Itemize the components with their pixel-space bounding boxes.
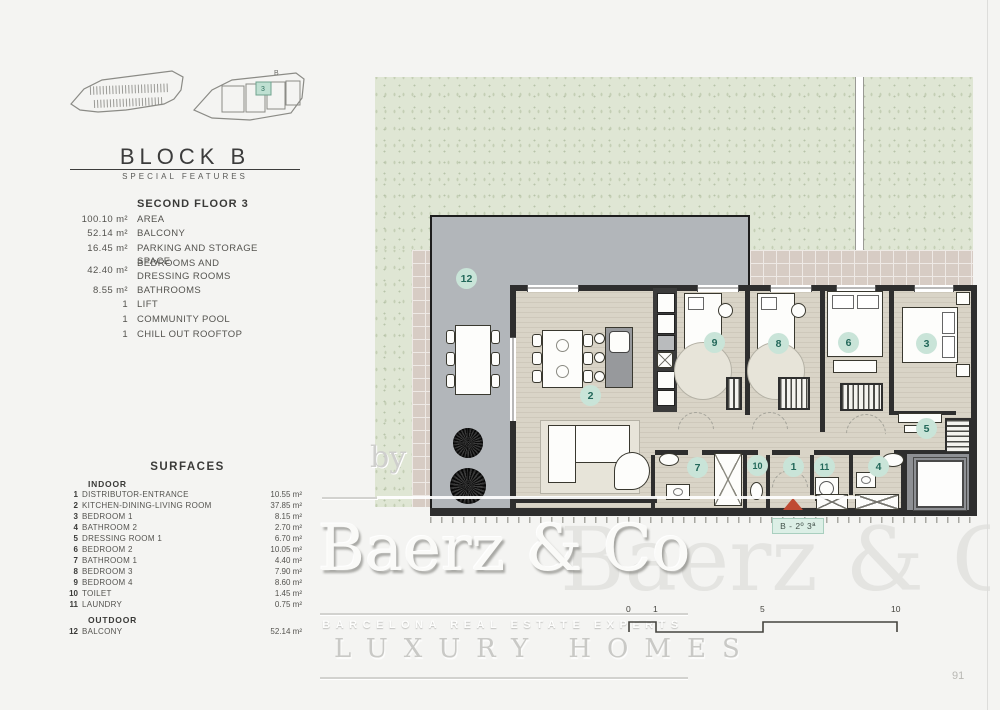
feature-row: 42.40 m² BEDROOMS AND DRESSING ROOMS [58,258,247,283]
feature-value: 52.14 m² [58,228,128,241]
wall-laundry-bath4 [849,455,853,495]
chair [583,370,593,383]
brochure-page: 3 B BLOCK B SPECIAL FEATURES SECOND FLOO… [0,0,1000,710]
surface-label: TOILET [82,589,252,598]
chair [446,330,455,344]
surface-value: 52.14 m² [252,627,302,636]
feature-row: 1 CHILL OUT ROOFTOP [58,329,287,342]
toilet [659,453,679,466]
surface-value: 10.55 m² [252,490,302,499]
window [770,285,812,292]
surface-value: 4.40 m² [252,556,302,565]
feature-row: 52.14 m² BALCONY [58,228,287,241]
feature-label: BEDROOMS AND DRESSING ROOMS [137,258,247,283]
surface-label: BATHROOM 2 [82,523,252,532]
wall-entrance-laundry [810,455,814,495]
wall-left-lower [510,421,516,508]
page-edge [987,0,988,710]
feature-value: 1 [58,299,128,312]
surface-label: BEDROOM 4 [82,578,252,587]
floor-section-title: SECOND FLOOR 3 [137,198,249,210]
surface-num: 8 [62,567,78,576]
surface-value: 6.70 m² [252,534,302,543]
surface-label: BEDROOM 2 [82,545,252,554]
surface-value: 10.05 m² [252,545,302,554]
room-badge-kitchen-dining-living: 2 [580,385,601,406]
wardrobe [840,383,883,411]
surface-row: 4 BATHROOM 2 2.70 m² [62,523,302,532]
surface-value: 0.75 m² [252,600,302,609]
building-overview-diagram [68,68,190,132]
wardrobe [778,377,810,410]
scale-tick: 5 [760,604,765,614]
surface-num: 2 [62,501,78,510]
surface-row: 10 TOILET 1.45 m² [62,589,302,598]
bed-bench [833,360,877,373]
indoor-heading: INDOOR [88,479,127,489]
room-badge-balcony: 12 [456,268,477,289]
scale-tick: 0 [626,604,631,614]
sofa-chaise [548,425,576,483]
title-rule [70,169,300,170]
surface-num: 5 [62,534,78,543]
room-badge-toilet: 10 [747,455,768,476]
hall-door-gap [688,450,702,455]
nightstand [956,292,970,305]
room-badge-bathroom-1: 7 [687,457,708,478]
surface-num: 6 [62,545,78,554]
window [527,285,579,292]
feature-label: LIFT [137,299,287,312]
surface-row: 3 BEDROOM 1 8.15 m² [62,512,302,521]
block-title: BLOCK B [70,144,300,170]
window [697,285,739,292]
chair [532,370,542,383]
nightstand [956,364,970,377]
room-badge-bedroom-4: 9 [704,332,725,353]
chair [446,352,455,366]
kitchen-cabinet-column [653,288,677,412]
surface-num: 1 [62,490,78,499]
surface-label: DISTRIBUTOR-ENTRANCE [82,490,252,499]
surface-value: 2.70 m² [252,523,302,532]
surface-row: 2 KITCHEN-DINING-LIVING ROOM 37.85 m² [62,501,302,510]
stool [791,303,806,318]
feature-label: AREA [137,214,287,227]
surface-row: 6 BEDROOM 2 10.05 m² [62,545,302,554]
surface-num: 9 [62,578,78,587]
kitchen-island [605,327,633,388]
surface-num: 10 [62,589,78,598]
wall-left-upper [510,285,516,337]
block-subtitle: SPECIAL FEATURES [70,172,300,181]
room-badge-bedroom-3: 8 [768,333,789,354]
window [914,285,954,292]
bar-stool [594,333,605,344]
surface-label: BALCONY [82,627,252,636]
chair [446,374,455,388]
feature-label: BATHROOMS [137,285,287,298]
chair [532,352,542,365]
surface-row: 12 BALCONY 52.14 m² [62,627,302,636]
dining-table [542,330,583,388]
wall-top [510,285,977,291]
surface-row: 1 DISTRIBUTOR-ENTRANCE 10.55 m² [62,490,302,499]
surface-label: DRESSING ROOM 1 [82,534,252,543]
wall-bath7-left [651,455,655,510]
surface-row: 7 BATHROOM 1 4.40 m² [62,556,302,565]
watermark-by: by [370,440,406,475]
surface-row: 11 LAUNDRY 0.75 m² [62,600,302,609]
diagram-b-label: B [274,70,279,77]
chair [491,374,500,388]
outdoor-heading: OUTDOOR [88,615,137,625]
surface-value: 7.90 m² [252,567,302,576]
surface-row: 9 BEDROOM 4 8.60 m² [62,578,302,587]
room-badge-bathroom-2: 4 [868,456,889,477]
surface-label: BATHROOM 1 [82,556,252,565]
chair [491,352,500,366]
wall-bed6-3 [889,287,894,415]
divider-line-light [377,496,860,499]
surface-num: 4 [62,523,78,532]
page-number: 91 [952,670,964,682]
surface-value: 8.60 m² [252,578,302,587]
wall-bed9-8 [745,287,750,415]
watermark-brand: Baerz & Co [318,512,688,586]
chair [583,334,593,347]
feature-value: 8.55 m² [58,285,128,298]
chair [583,352,593,365]
surface-row: 8 BEDROOM 3 7.90 m² [62,567,302,576]
chair [491,330,500,344]
wardrobe [726,377,742,410]
surface-num: 3 [62,512,78,521]
feature-row: 8.55 m² BATHROOMS [58,285,287,298]
surface-value: 37.85 m² [252,501,302,510]
feature-label: CHILL OUT ROOFTOP [137,329,287,342]
stool [718,303,733,318]
watermark-rule-bottom [320,677,688,679]
feature-value: 1 [58,329,128,342]
surface-num: 12 [62,627,78,636]
surface-value: 1.45 m² [252,589,302,598]
bar-stool [594,371,605,382]
surface-label: BEDROOM 1 [82,512,252,521]
lift-shaft [905,452,971,512]
feature-row: 100.10 m² AREA [58,214,287,227]
chair [532,334,542,347]
surface-label: LAUNDRY [82,600,252,609]
scale-tick: 10 [891,604,900,614]
balcony-dining-table [455,325,491,395]
feature-label: BALCONY [137,228,287,241]
floor-location-diagram: 3 [192,66,308,134]
feature-value: 100.10 m² [58,214,128,227]
divider-line [322,497,378,499]
bar-stool [594,352,605,363]
feature-row: 1 COMMUNITY POOL [58,314,287,327]
surface-value: 8.15 m² [252,512,302,521]
feature-row: 1 LIFT [58,299,287,312]
room-badge-bedroom-2: 6 [838,332,859,353]
scale-tick: 1 [653,604,658,614]
balcony-sliding-door [510,337,516,423]
wall-right [971,285,977,516]
surface-label: KITCHEN-DINING-LIVING ROOM [82,501,252,510]
wall-bed8-6 [820,287,825,432]
surface-num: 11 [62,600,78,609]
surface-num: 7 [62,556,78,565]
room-badge-entrance: 1 [783,456,804,477]
room-badge-laundry: 11 [814,456,835,477]
room-badge-dressing-room: 5 [916,418,937,439]
feature-value: 1 [58,314,128,327]
round-rug [674,342,732,400]
room-badge-bedroom-1: 3 [916,333,937,354]
highlighted-unit-label: 3 [261,86,265,93]
surface-row: 5 DRESSING ROOM 1 6.70 m² [62,534,302,543]
surfaces-title: SURFACES [75,461,300,473]
feature-value: 42.40 m² [58,265,128,276]
feature-label: COMMUNITY POOL [137,314,287,327]
surface-label: BEDROOM 3 [82,567,252,576]
garden-divider [855,77,864,250]
floor-lamp [614,452,650,490]
potted-plant [453,428,483,458]
